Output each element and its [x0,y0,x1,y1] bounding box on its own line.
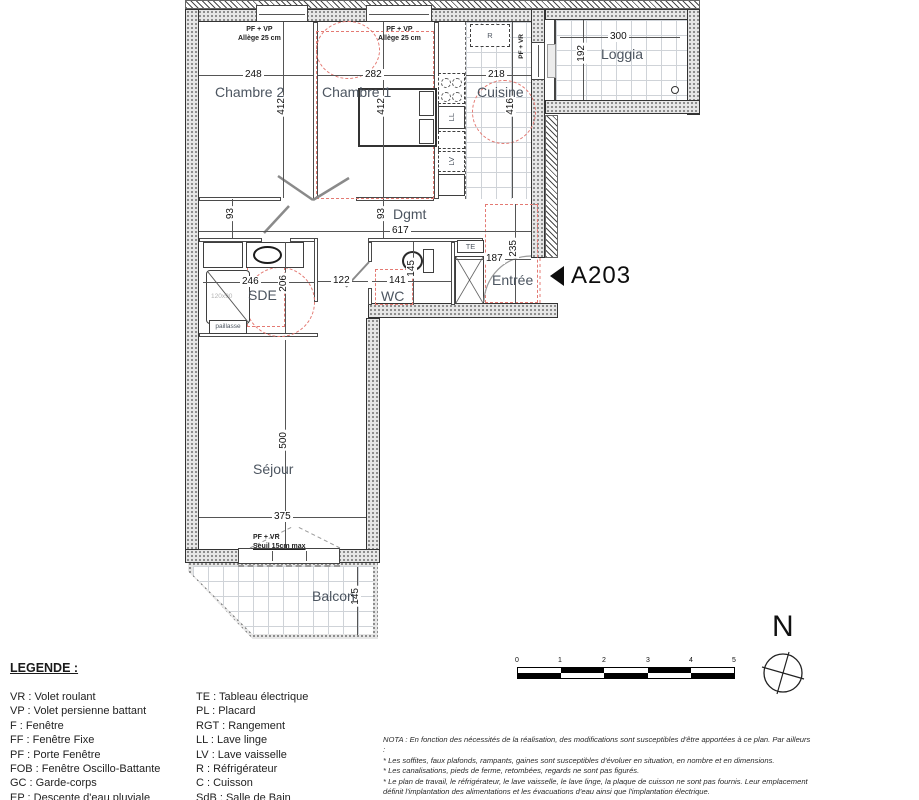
room-label-wc: WC [381,289,404,304]
legend-item: FOB : Fenêtre Oscillo-Battante [10,762,160,776]
legend-item: EP : Descente d'eau pluviale [10,791,160,800]
nota-line: définit l'implantation des alimentations… [383,787,913,797]
dim-entree-height: 235 [508,238,519,259]
dim-wc-height: 145 [406,258,417,279]
room-label-sejour: Séjour [253,462,293,477]
dim-sejour-height: 500 [278,430,289,451]
dim-loggia-width: 300 [608,31,629,42]
nota-line: * Le plan de travail, le réfrigérateur, … [383,777,913,787]
scale-segment [561,673,604,678]
legend-item: TE : Tableau électrique [196,690,308,704]
window-note-line2: Allège 25 cm [378,35,421,44]
dim-loggia-height: 192 [576,43,587,64]
legend-item: GC : Garde-corps [10,776,160,790]
room-label-sde: SDE [248,288,277,303]
sejour-door-note: PF + VR Seuil 15cm max [253,534,306,551]
entrance-arrow-icon [550,266,564,286]
dim-wc-width: 141 [387,275,408,286]
door-leaf-sde [264,206,289,233]
north-label: N [772,610,794,644]
dim-sde-width: 246 [240,276,261,287]
legend-title: LEGENDE : [10,661,78,675]
window-note-chambre2: PF + VP Allège 25 cm [238,26,281,43]
scale-tick: 5 [732,657,736,664]
dim-corridor-offset-left: 93 [225,206,236,221]
dim-sejour-width: 375 [272,511,293,522]
legend-item: VP : Volet persienne battant [10,704,160,718]
legend-column-1: VR : Volet roulant VP : Volet persienne … [10,690,160,800]
legend-item: SdB : Salle de Bain [196,791,308,800]
floor-plan-canvas: R LL LV 120x90 paillasse TE [0,0,919,800]
scale-segment [518,673,561,678]
nota-block: NOTA : En fonction des nécessités de la … [383,735,913,797]
nota-line: NOTA : En fonction des nécessités de la … [383,735,913,745]
room-label-chambre2: Chambre 2 [215,85,284,100]
legend-item: PF : Porte Fenêtre [10,748,160,762]
dim-corridor-offset-mid: 93 [376,206,387,221]
nota-line: : [383,745,913,755]
room-label-loggia: Loggia [601,47,643,62]
legend-column-2: TE : Tableau électrique PL : Placard RGT… [196,690,308,800]
room-label-balcon: Balcon [312,589,355,604]
window-note-line1: PF + VP [238,26,281,35]
dimline [372,281,451,282]
scale-segment [648,673,691,678]
scale-tick: 4 [689,657,693,664]
dim-corridor-width: 617 [390,225,411,236]
legend-item: FF : Fenêtre Fixe [10,733,160,747]
scale-tick: 2 [602,657,606,664]
scale-tick: 0 [515,657,519,664]
scale-bar [517,667,735,679]
legend-item: VR : Volet roulant [10,690,160,704]
scale-tick: 3 [646,657,650,664]
window-note-line2: Allège 25 cm [238,35,281,44]
legend-item: C : Cuisson [196,776,308,790]
nota-line: * Les soffites, faux plafonds, rampants,… [383,756,913,766]
room-label-entree: Entrée [492,273,533,288]
legend-item: RGT : Rangement [196,719,308,733]
room-label-dgmt: Dgmt [393,207,426,222]
compass-icon [753,643,813,703]
scale-segment [691,673,734,678]
dim-cuisine-width: 218 [486,69,507,80]
nota-line: * Les canalisations, pieds de ferme, ret… [383,766,913,776]
dim-chambre2-width: 248 [243,69,264,80]
unit-number: A203 [571,262,631,290]
dimline [199,231,531,232]
dim-chambre1-width: 282 [363,69,384,80]
legend-item: LV : Lave vaisselle [196,748,308,762]
legend-item: PL : Placard [196,704,308,718]
window-note-chambre1: PF + VP Allège 25 cm [378,26,421,43]
dim-passage-width: 122 [331,275,352,286]
door-leaf-chambre1 [313,178,349,200]
room-label-cuisine: Cuisine [477,85,524,100]
loggia-door-note: PF + VR [518,34,527,59]
sejour-door-note-line1: PF + VR [253,534,306,543]
room-label-chambre1: Chambre 1 [322,85,391,100]
window-note-line1: PF + VP [378,26,421,35]
scale-segment [604,673,647,678]
sejour-door-note-line2: Seuil 15cm max [253,543,306,552]
scale-tick: 1 [558,657,562,664]
legend-item: LL : Lave linge [196,733,308,747]
legend-item: R : Réfrigérateur [196,762,308,776]
dim-sde-height: 206 [278,273,289,294]
legend-item: F : Fenêtre [10,719,160,733]
dim-entree-width: 187 [484,253,505,264]
